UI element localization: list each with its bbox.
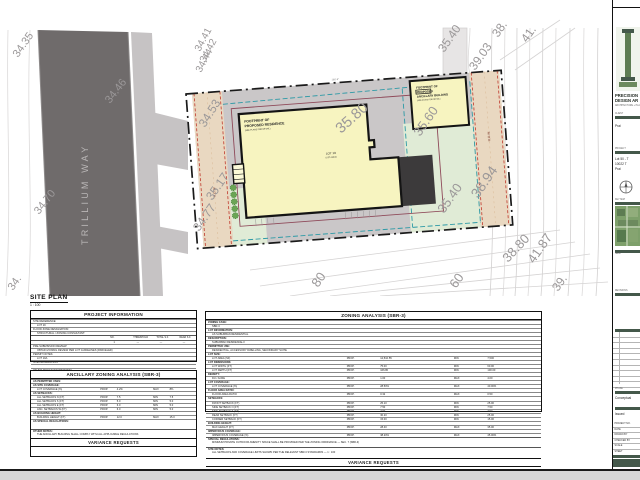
divider-bar <box>615 202 640 205</box>
project-information-table: PROJECT INFORMATION SITE REFERENCE:LOT 1… <box>30 310 197 362</box>
phase-label: PHASE <box>615 388 623 390</box>
zoning-analysis-table: ZONING ANALYSIS (SBR-3) ZONING CASE:SBR-… <box>205 311 542 412</box>
project-information-title: PROJECT INFORMATION <box>31 311 196 319</box>
project-line-3: Prai <box>615 167 621 171</box>
divider-bar <box>615 407 640 410</box>
sheet-number-band <box>613 459 640 467</box>
dimension-label: 166'-9" <box>332 78 340 82</box>
revision-col-divider <box>619 332 620 384</box>
ancillary-zoning-table: ANCILLARY ZONING ANALYSIS (SBR-3) AS PER… <box>30 370 197 457</box>
issue-text: Issued <box>615 412 624 416</box>
table-row: IMPERVIOUS COVERAGE (%)PROP.38.20%MAX45.… <box>206 433 541 437</box>
site-plan-drawing: TRILLIUM WAY <box>0 0 612 296</box>
zoning-analysis-title: ZONING ANALYSIS (SBR-3) <box>206 312 541 320</box>
patio-footprint <box>398 155 436 206</box>
project-line-1: Lot 50 - T <box>615 157 629 161</box>
street-name-label: TRILLIUM WAY <box>80 144 90 245</box>
titleblock-top-border <box>613 7 640 8</box>
divider-bar <box>615 151 640 154</box>
project-label: PROJECT <box>615 148 626 150</box>
divider-bar <box>615 391 640 394</box>
parcel-group: FOOTPRINT OF PROPOSED RESIDENCE (SEE PLA… <box>186 66 513 249</box>
ancillary-zoning-title: ANCILLARY ZONING ANALYSIS (SBR-3) <box>31 371 196 379</box>
row-label-right: R.O.W. <box>487 131 492 142</box>
key-map-thumbnail <box>615 206 640 246</box>
page-margin <box>0 471 640 480</box>
view-title: SITE PLAN <box>30 294 68 303</box>
elevation-label: 34.35 <box>11 30 37 59</box>
table-row: AS SPECIAL REGULATIONS: <box>31 419 196 423</box>
ancillary-variance-title: VARIANCE REQUESTS <box>31 438 196 447</box>
entry-stairs <box>232 164 244 184</box>
client-label: CLIENT <box>615 113 623 115</box>
zoning-note1-text: MINIMUM PRIVATE OUTDOOR AMENITY SPACE SH… <box>206 441 541 444</box>
divider-bar <box>615 329 640 332</box>
elevation-label: 39. <box>549 272 570 294</box>
elevation-label: 41. <box>518 23 539 45</box>
divider-bar <box>613 455 640 458</box>
phase-text: Conceptual <box>615 396 631 400</box>
divider-bar <box>615 116 640 119</box>
divider-bar <box>615 293 640 296</box>
zoning-variance-title: VARIANCE REQUESTS <box>206 458 541 467</box>
title-block: PRECISION DESIGN AR ARCHITECTURE + PLANN… <box>612 0 640 480</box>
zoning-note2-text: ALL SETBACKS AND COVERAGE LIMITS SHOWN P… <box>206 451 541 454</box>
north-arrow-icon <box>619 180 633 194</box>
key-map-label: KEY MAP <box>615 199 625 201</box>
seal-label: SEAL <box>615 253 621 255</box>
drawing-sheet: TRILLIUM WAY <box>0 0 640 480</box>
client-text: Prai <box>615 124 621 128</box>
elevation-label: 80 <box>308 269 329 289</box>
view-scale: 1 : 100 <box>30 303 40 307</box>
revisions-label: REVISIONS <box>615 290 628 292</box>
revision-table <box>613 332 640 388</box>
sheet-info-table: PROJECT NO.DATEDRAWN BYCHECKED BYSCALESH… <box>613 422 640 456</box>
firm-logo <box>616 27 640 91</box>
firm-name-line2: DESIGN AR <box>615 99 638 104</box>
firm-subtitle: ARCHITECTURE + PLANNING <box>615 105 640 107</box>
elevation-label: 34. <box>6 273 25 292</box>
ancillary-note-text: THE ANCILLARY BUILDING SHALL COMPLY WITH… <box>31 433 196 436</box>
lot-label: LOT 19 <box>326 151 337 156</box>
driveway-apron <box>152 112 188 170</box>
elevation-label: 39.03 <box>466 40 495 73</box>
project-line-2: 10022 T <box>615 162 627 166</box>
